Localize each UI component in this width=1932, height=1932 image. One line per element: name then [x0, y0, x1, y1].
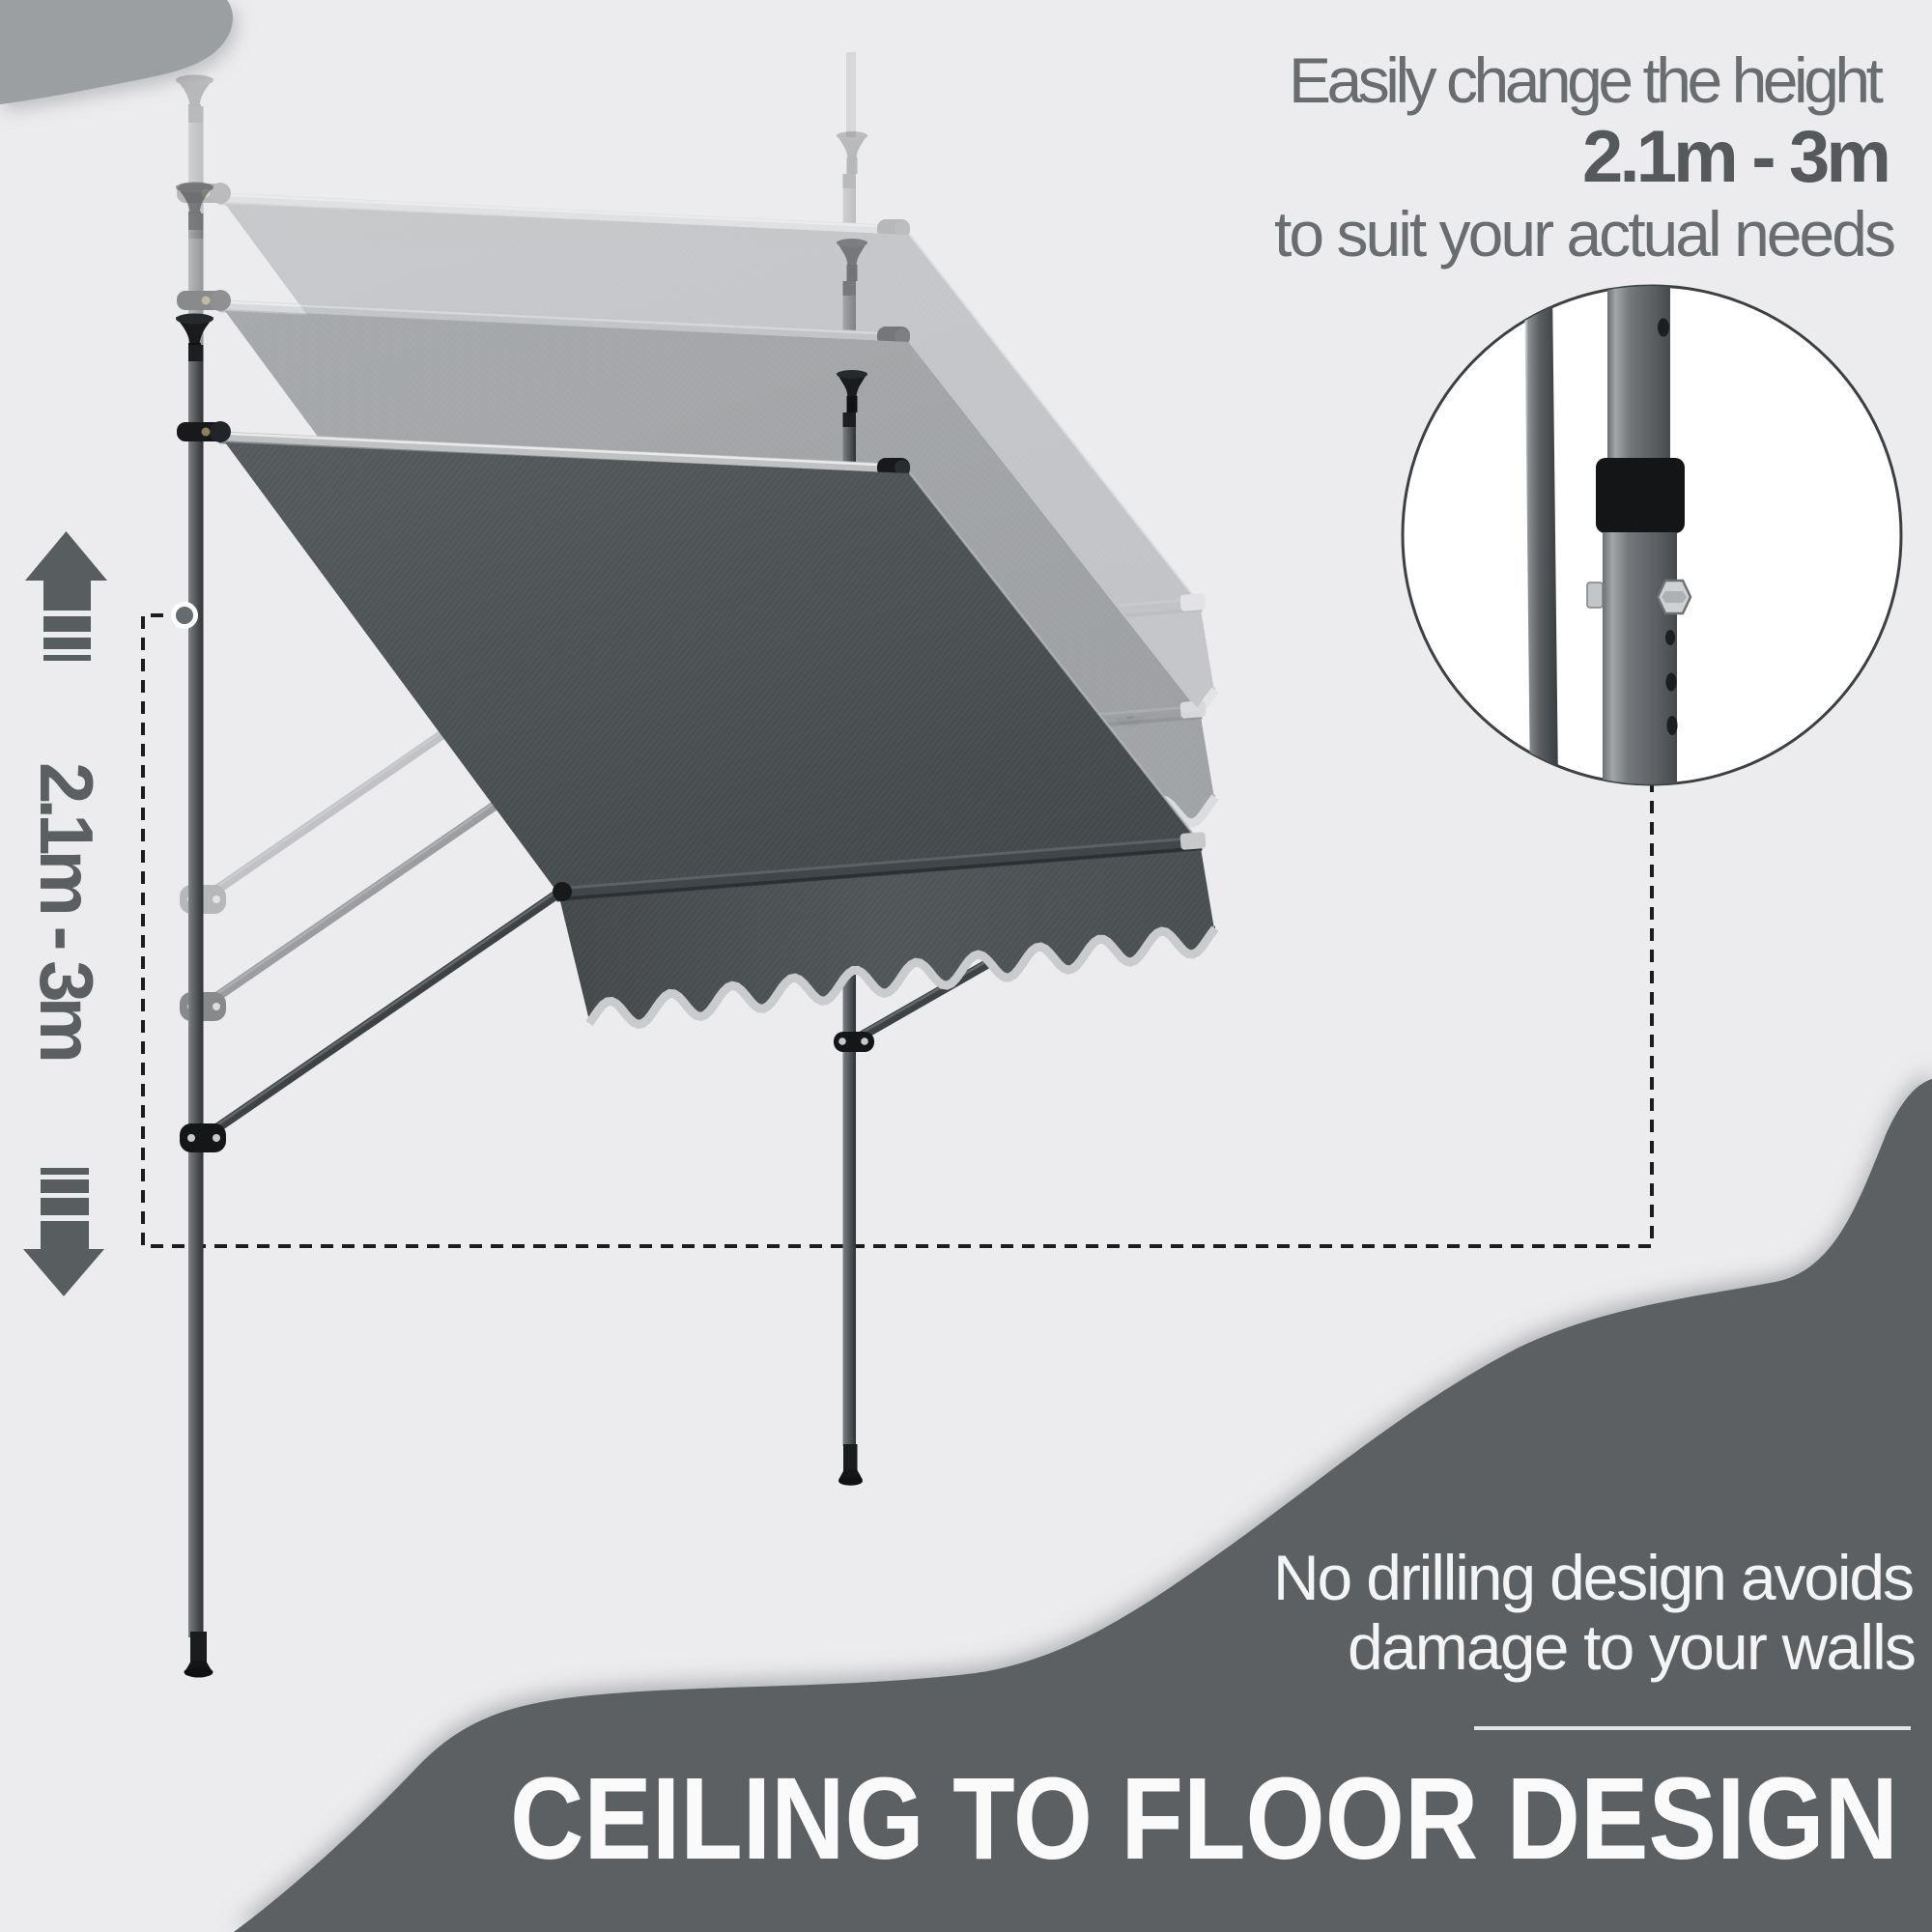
svg-text:2.1m - 3m: 2.1m - 3m [24, 762, 109, 1064]
svg-text:CEILING TO FLOOR DESIGN: CEILING TO FLOOR DESIGN [510, 1752, 1898, 1884]
svg-text:damage to your walls: damage to your walls [1348, 1611, 1917, 1683]
svg-text:2.1m - 3m: 2.1m - 3m [1582, 116, 1891, 198]
svg-text:No drilling design avoids: No drilling design avoids [1273, 1542, 1915, 1613]
svg-text:to suit your actual needs: to suit your actual needs [1274, 198, 1896, 270]
svg-text:Easily change the height: Easily change the height [1289, 44, 1884, 116]
